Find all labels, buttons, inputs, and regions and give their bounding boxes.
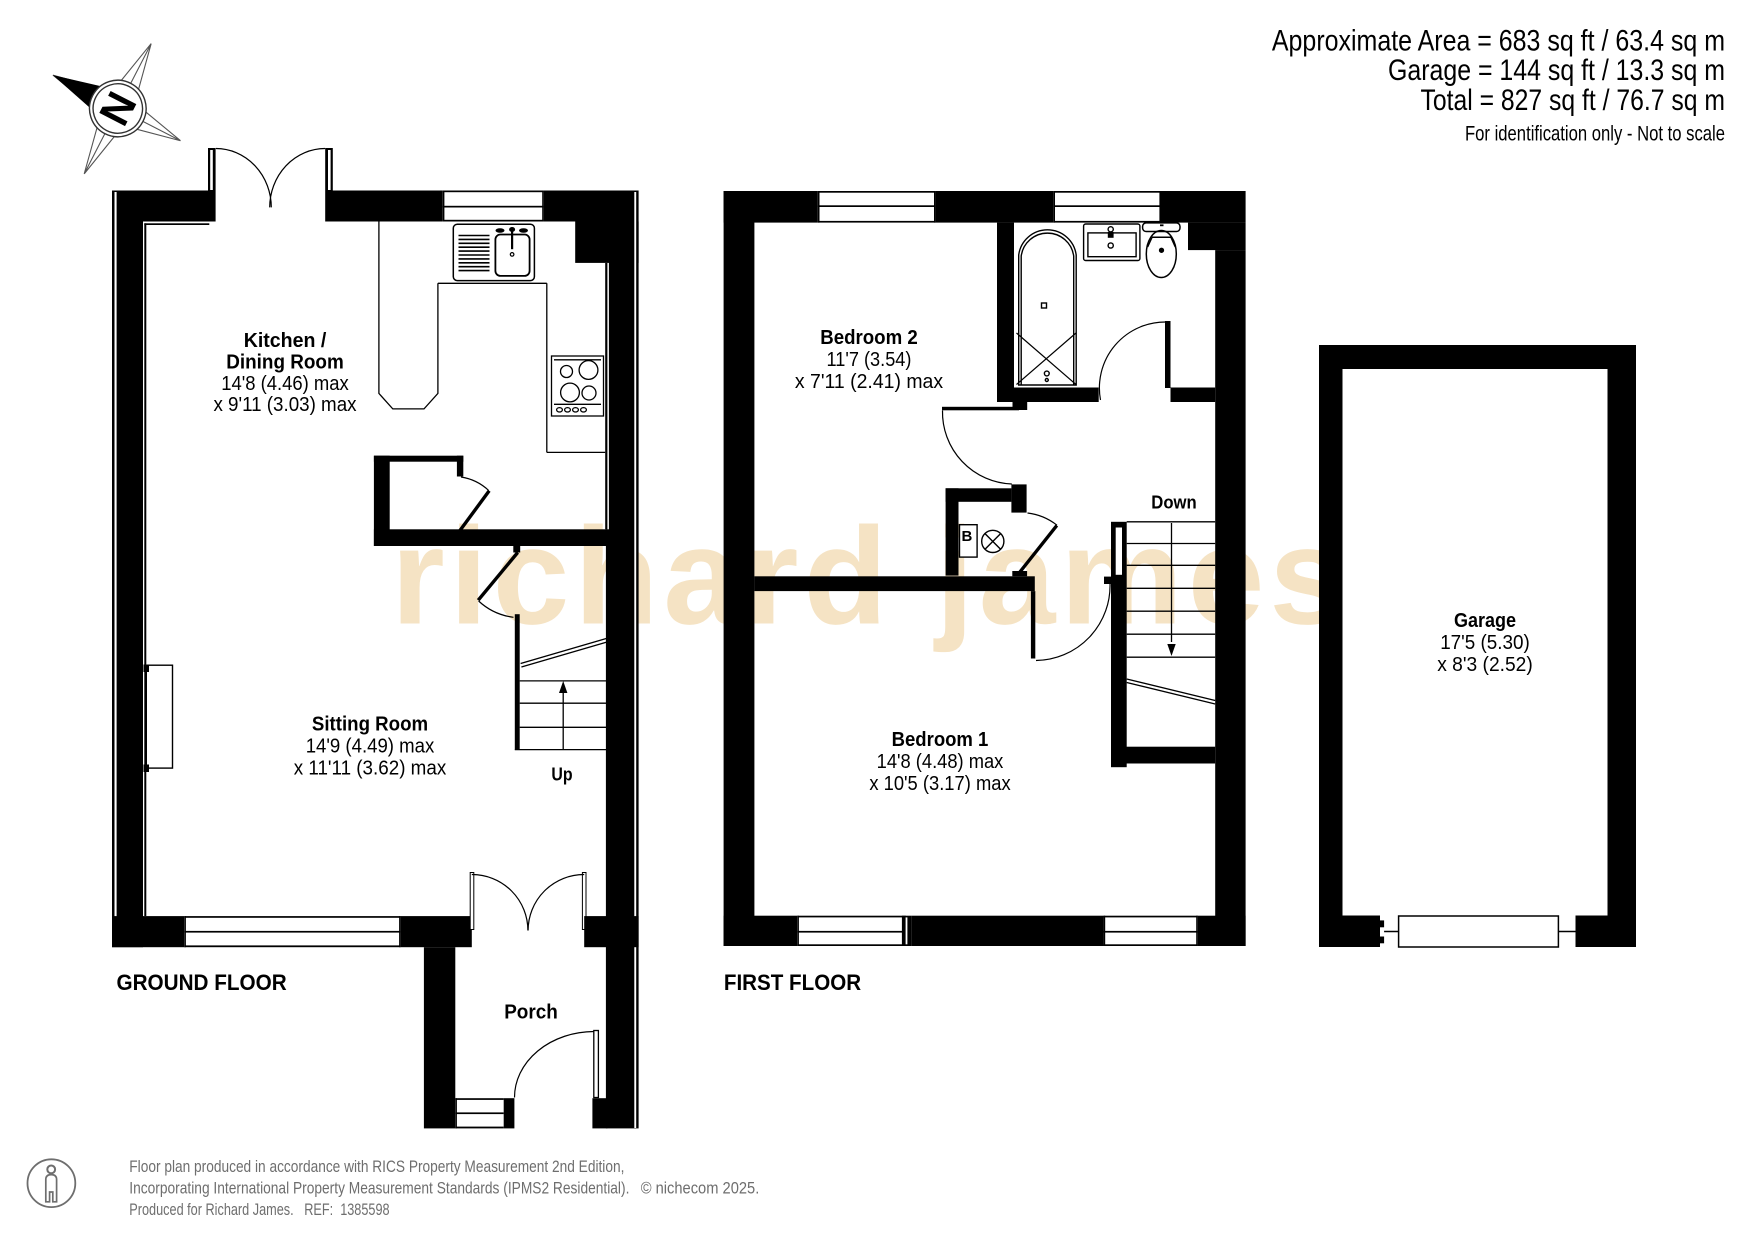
svg-text:Garage: Garage (1454, 610, 1516, 632)
svg-text:Produced for Richard James.: Produced for Richard James. REF: 1385598 (129, 1201, 389, 1219)
svg-text:Garage = 144 sq ft / 13.3 sq m: Garage = 144 sq ft / 13.3 sq m (1388, 54, 1725, 87)
svg-text:Porch: Porch (504, 1002, 558, 1024)
svg-text:Kitchen /: Kitchen / (244, 330, 327, 352)
svg-text:14'8 (4.48) max: 14'8 (4.48) max (877, 751, 1004, 773)
svg-text:17'5 (5.30): 17'5 (5.30) (1440, 632, 1530, 654)
svg-text:B: B (962, 528, 973, 545)
svg-text:14'9 (4.49) max: 14'9 (4.49) max (306, 735, 435, 757)
svg-text:For identification only - Not: For identification only - Not to scale (1465, 123, 1725, 146)
svg-text:FIRST FLOOR: FIRST FLOOR (724, 970, 861, 995)
svg-text:Total = 827 sq ft / 76.7 sq m: Total = 827 sq ft / 76.7 sq m (1421, 84, 1726, 117)
svg-text:14'8 (4.46) max: 14'8 (4.46) max (221, 373, 349, 395)
svg-text:x 11'11 (3.62) max: x 11'11 (3.62) max (294, 757, 447, 779)
svg-text:Up: Up (551, 765, 572, 785)
svg-text:Bedroom 2: Bedroom 2 (820, 327, 918, 349)
svg-text:© nichecom 2025.: © nichecom 2025. (641, 1180, 760, 1198)
svg-text:x 8'3 (2.52): x 8'3 (2.52) (1437, 654, 1533, 676)
svg-text:Approximate Area = 683 sq ft /: Approximate Area = 683 sq ft / 63.4 sq m (1272, 24, 1725, 57)
svg-text:x 9'11 (3.03) max: x 9'11 (3.03) max (213, 394, 356, 416)
svg-text:x 7'11 (2.41) max: x 7'11 (2.41) max (795, 371, 943, 393)
svg-text:Floor plan produced in accorda: Floor plan produced in accordance with R… (129, 1158, 624, 1176)
svg-text:Sitting Room: Sitting Room (312, 714, 428, 736)
svg-text:11'7 (3.54): 11'7 (3.54) (827, 349, 912, 371)
svg-text:GROUND FLOOR: GROUND FLOOR (117, 970, 287, 995)
svg-text:Bedroom 1: Bedroom 1 (892, 729, 989, 751)
svg-text:Incorporating International Pr: Incorporating International Property Mea… (129, 1180, 629, 1198)
svg-text:x 10'5 (3.17) max: x 10'5 (3.17) max (869, 773, 1010, 795)
svg-text:Down: Down (1151, 493, 1196, 513)
svg-text:Dining Room: Dining Room (226, 351, 344, 373)
